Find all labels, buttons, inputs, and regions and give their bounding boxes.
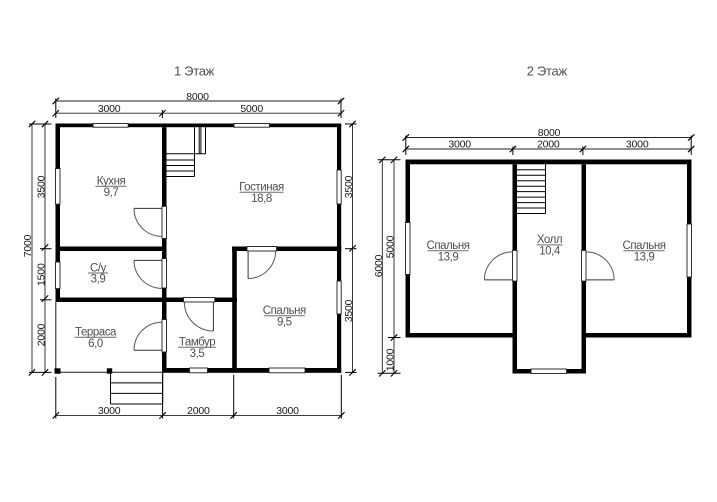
svg-text:3000: 3000 <box>276 405 299 417</box>
svg-text:8000: 8000 <box>538 127 561 139</box>
svg-text:1 Этаж: 1 Этаж <box>174 64 215 79</box>
svg-text:5000: 5000 <box>385 235 397 258</box>
svg-text:3500: 3500 <box>343 175 355 198</box>
svg-text:13,9: 13,9 <box>634 251 655 263</box>
svg-text:2000: 2000 <box>35 323 47 346</box>
svg-text:3000: 3000 <box>448 139 471 151</box>
svg-text:5000: 5000 <box>240 103 263 115</box>
svg-text:3000: 3000 <box>98 405 121 417</box>
svg-text:18,8: 18,8 <box>251 193 272 205</box>
svg-text:9,5: 9,5 <box>277 316 292 328</box>
svg-text:8000: 8000 <box>186 91 209 103</box>
svg-text:3,5: 3,5 <box>190 348 205 360</box>
svg-text:1000: 1000 <box>385 348 397 371</box>
svg-text:2000: 2000 <box>187 405 210 417</box>
svg-text:2000: 2000 <box>537 139 560 151</box>
svg-text:3,9: 3,9 <box>91 274 106 286</box>
svg-text:6,0: 6,0 <box>88 338 103 350</box>
svg-text:2 Этаж: 2 Этаж <box>527 64 568 79</box>
svg-text:10,4: 10,4 <box>539 246 561 258</box>
svg-text:7000: 7000 <box>22 234 34 257</box>
svg-text:3500: 3500 <box>35 175 47 198</box>
svg-text:9,7: 9,7 <box>104 187 119 199</box>
svg-text:3000: 3000 <box>98 103 121 115</box>
svg-text:6000: 6000 <box>373 254 385 277</box>
svg-text:13,9: 13,9 <box>438 251 459 263</box>
svg-text:3500: 3500 <box>343 299 355 322</box>
svg-text:3000: 3000 <box>626 139 649 151</box>
svg-text:1500: 1500 <box>35 263 47 286</box>
